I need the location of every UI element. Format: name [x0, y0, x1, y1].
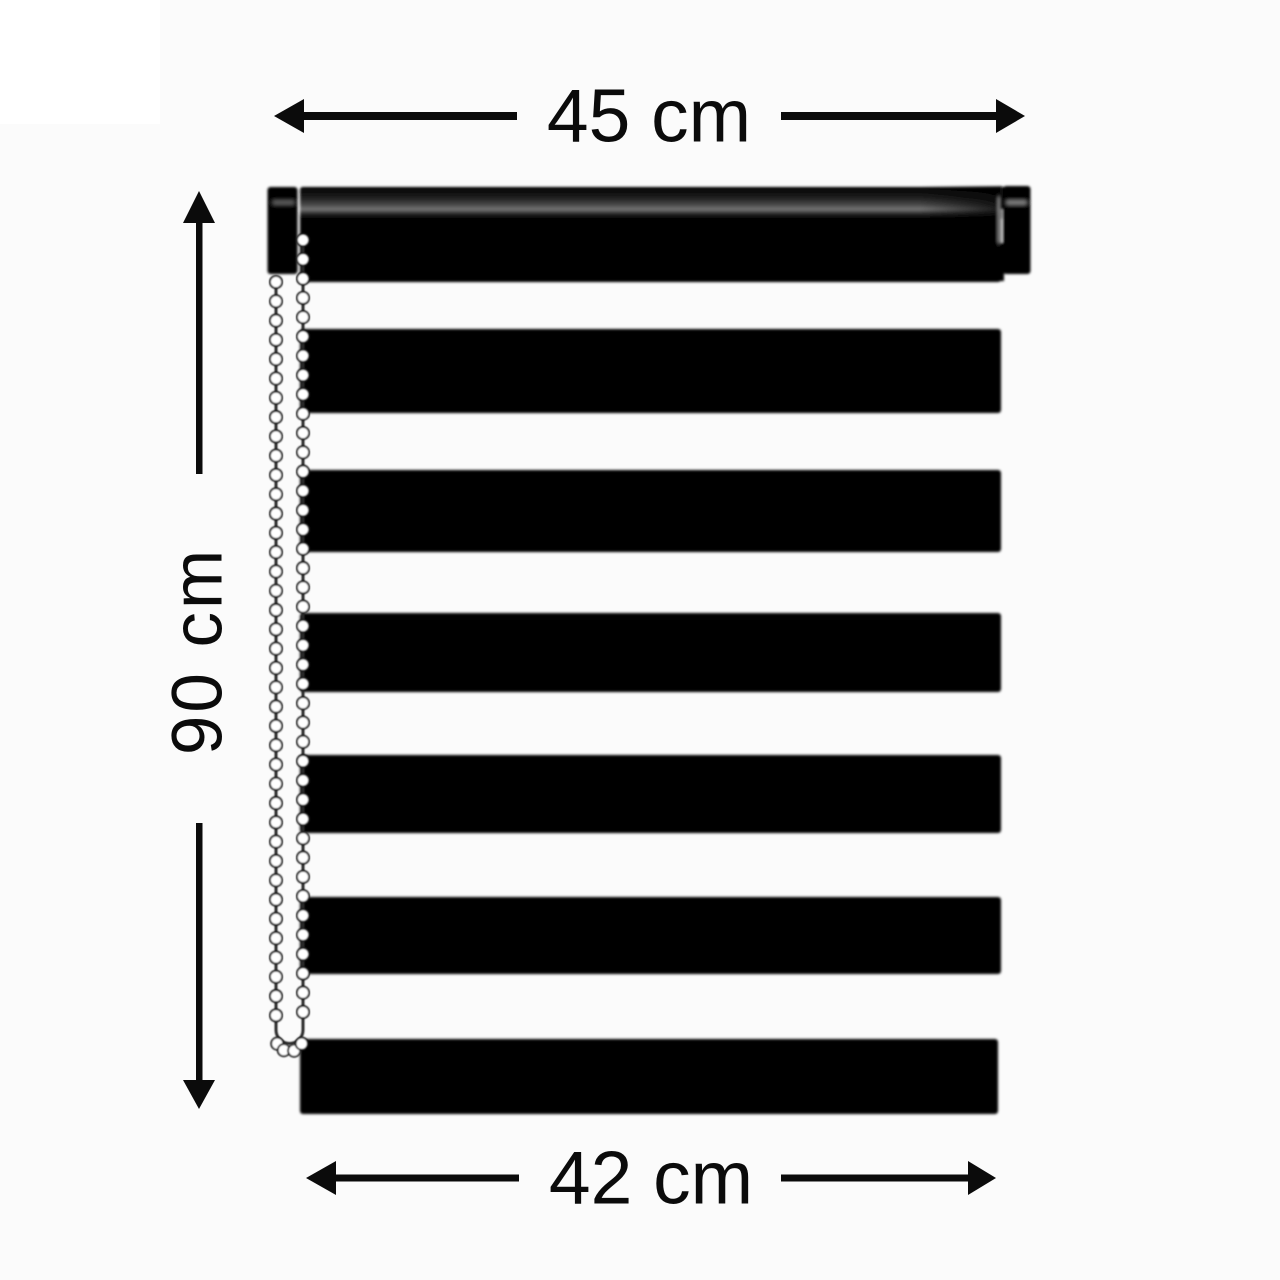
svg-text:42 cm: 42 cm [549, 1136, 753, 1220]
svg-text:90 cm: 90 cm [159, 547, 238, 755]
svg-text:45 cm: 45 cm [547, 74, 751, 158]
